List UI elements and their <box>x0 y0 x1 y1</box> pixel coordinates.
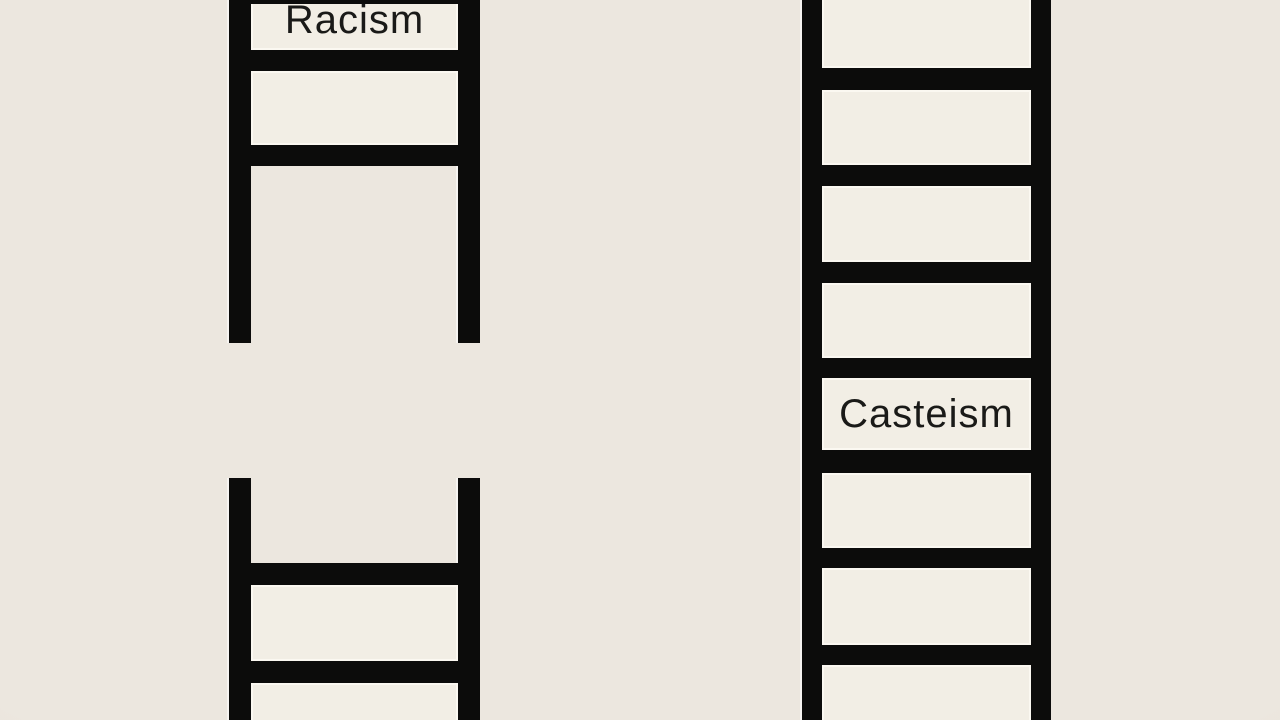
ladder-rung <box>802 68 1051 90</box>
illustration-canvas: Racism Casteism <box>0 0 1280 720</box>
ladder-cell <box>822 665 1031 720</box>
ladder-cell <box>822 568 1031 645</box>
ladder-rung <box>802 450 1051 473</box>
ladder-cell-racism: Racism <box>251 4 458 50</box>
ladder-cell <box>251 585 458 661</box>
ladder-rung <box>229 661 480 683</box>
ladder-cell <box>822 90 1031 165</box>
ladder-cell <box>822 283 1031 358</box>
ladder-cell <box>822 0 1031 68</box>
ladder-rung <box>802 262 1051 283</box>
ladder-rung <box>802 358 1051 378</box>
ladder-cell <box>251 71 458 145</box>
ladder-rung <box>229 145 480 166</box>
ladder-rung <box>802 548 1051 568</box>
ladder-rail-right <box>458 478 480 720</box>
ladder-rung <box>229 563 480 585</box>
ladder-rung <box>229 50 480 71</box>
ladder-cell <box>822 186 1031 262</box>
ladder-rung <box>802 645 1051 665</box>
casteism-label: Casteism <box>824 394 1029 434</box>
ladder-cell-casteism: Casteism <box>822 378 1031 450</box>
vignette-overlay <box>0 0 1280 720</box>
racism-label: Racism <box>253 0 456 40</box>
ladder-rail-left <box>229 478 251 720</box>
ladder-cell <box>251 683 458 720</box>
ladder-cell <box>822 473 1031 548</box>
ladder-rung <box>802 165 1051 186</box>
